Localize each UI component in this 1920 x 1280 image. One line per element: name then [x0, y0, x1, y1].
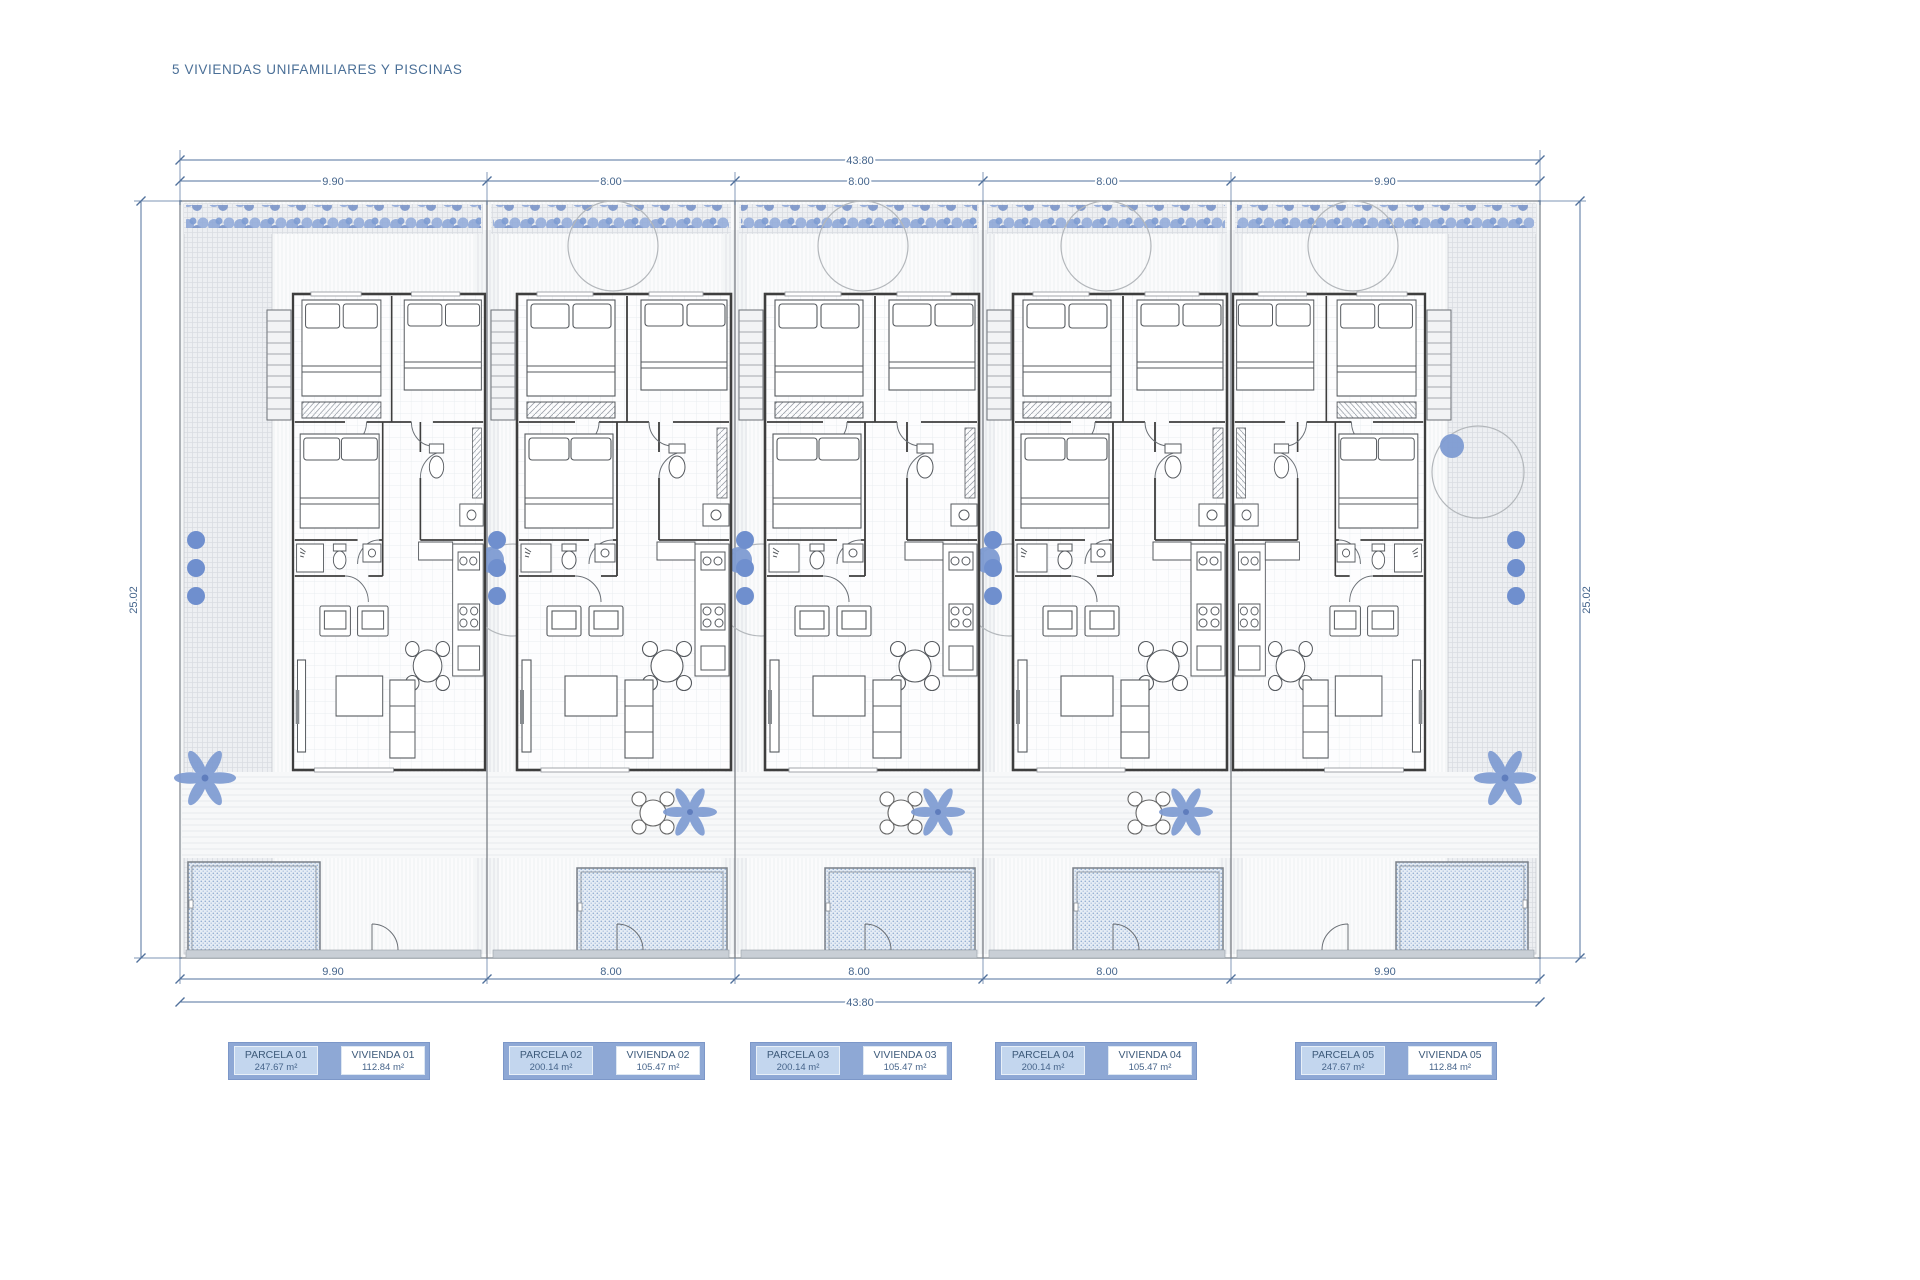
- house-unit-5: [1233, 292, 1451, 772]
- dim-bottom-seg-4: 8.00: [1096, 966, 1117, 978]
- pool-5: [1396, 862, 1528, 954]
- dim-bottom-seg-2: 8.00: [600, 966, 621, 978]
- vivienda-01-cell: VIVIENDA 01 112.84 m²: [341, 1046, 425, 1075]
- parcela-05-label: PARCELA 05: [1302, 1049, 1384, 1062]
- legend-box-4: PARCELA 04 200.14 m² VIVIENDA 04 105.47 …: [995, 1042, 1197, 1080]
- legend-box-3: PARCELA 03 200.14 m² VIVIENDA 03 105.47 …: [750, 1042, 952, 1080]
- patio-decking: [182, 772, 1538, 858]
- dim-left-side: 25.02: [128, 586, 140, 614]
- legend-box-2: PARCELA 02 200.14 m² VIVIENDA 02 105.47 …: [503, 1042, 705, 1080]
- vivienda-02-area: 105.47 m²: [617, 1062, 699, 1074]
- parcela-04-cell: PARCELA 04 200.14 m²: [1001, 1046, 1085, 1075]
- parcela-01-area: 247.67 m²: [235, 1062, 317, 1074]
- house-unit-3: [739, 292, 979, 772]
- dim-top-seg-3: 8.00: [848, 176, 869, 188]
- parcela-02-area: 200.14 m²: [510, 1062, 592, 1074]
- vivienda-03-label: VIVIENDA 03: [864, 1049, 946, 1062]
- dim-top-seg-1: 9.90: [322, 176, 343, 188]
- dim-bottom-seg-5: 9.90: [1374, 966, 1395, 978]
- vivienda-03-area: 105.47 m²: [864, 1062, 946, 1074]
- parcela-02-label: PARCELA 02: [510, 1049, 592, 1062]
- vivienda-05-cell: VIVIENDA 05 112.84 m²: [1408, 1046, 1492, 1075]
- parcela-02-cell: PARCELA 02 200.14 m²: [509, 1046, 593, 1075]
- pool-1: [188, 862, 320, 954]
- top-hedges: [184, 204, 1536, 234]
- house-unit-4: [987, 292, 1227, 772]
- vivienda-01-label: VIVIENDA 01: [342, 1049, 424, 1062]
- dim-top-seg-5: 9.90: [1374, 176, 1395, 188]
- parcela-03-area: 200.14 m²: [757, 1062, 839, 1074]
- parcela-05-cell: PARCELA 05 247.67 m²: [1301, 1046, 1385, 1075]
- parcela-03-label: PARCELA 03: [757, 1049, 839, 1062]
- house-unit-1: [267, 292, 485, 772]
- dim-top-seg-2: 8.00: [600, 176, 621, 188]
- vivienda-05-area: 112.84 m²: [1409, 1062, 1491, 1074]
- dim-bottom-total: 43.80: [846, 997, 874, 1009]
- parcela-01-label: PARCELA 01: [235, 1049, 317, 1062]
- vivienda-02-cell: VIVIENDA 02 105.47 m²: [616, 1046, 700, 1075]
- dim-bottom-seg-3: 8.00: [848, 966, 869, 978]
- dim-bottom-seg-1: 9.90: [322, 966, 343, 978]
- vivienda-04-cell: VIVIENDA 04 105.47 m²: [1108, 1046, 1192, 1075]
- vivienda-04-label: VIVIENDA 04: [1109, 1049, 1191, 1062]
- dim-top-total: 43.80: [846, 155, 874, 167]
- dim-right-side: 25.02: [1581, 586, 1593, 614]
- floor-plan-page: 5 VIVIENDAS UNIFAMILIARES Y PISCINAS: [0, 0, 1920, 1280]
- vivienda-01-area: 112.84 m²: [342, 1062, 424, 1074]
- vivienda-02-label: VIVIENDA 02: [617, 1049, 699, 1062]
- parcela-05-area: 247.67 m²: [1302, 1062, 1384, 1074]
- pool-3: [825, 868, 975, 954]
- legend-box-5: PARCELA 05 247.67 m² VIVIENDA 05 112.84 …: [1295, 1042, 1497, 1080]
- house-unit-2: [491, 292, 731, 772]
- parcela-01-cell: PARCELA 01 247.67 m²: [234, 1046, 318, 1075]
- pool-4: [1073, 868, 1223, 954]
- vivienda-05-label: VIVIENDA 05: [1409, 1049, 1491, 1062]
- parcela-03-cell: PARCELA 03 200.14 m²: [756, 1046, 840, 1075]
- parcela-04-area: 200.14 m²: [1002, 1062, 1084, 1074]
- site-plan-drawing: 43.80 9.90 8.00 8.00 8.00 9.90 9.90 8.00…: [0, 0, 1920, 1280]
- parcela-04-label: PARCELA 04: [1002, 1049, 1084, 1062]
- dim-top-seg-4: 8.00: [1096, 176, 1117, 188]
- pool-2: [577, 868, 727, 954]
- vivienda-03-cell: VIVIENDA 03 105.47 m²: [863, 1046, 947, 1075]
- legend-box-1: PARCELA 01 247.67 m² VIVIENDA 01 112.84 …: [228, 1042, 430, 1080]
- vivienda-04-area: 105.47 m²: [1109, 1062, 1191, 1074]
